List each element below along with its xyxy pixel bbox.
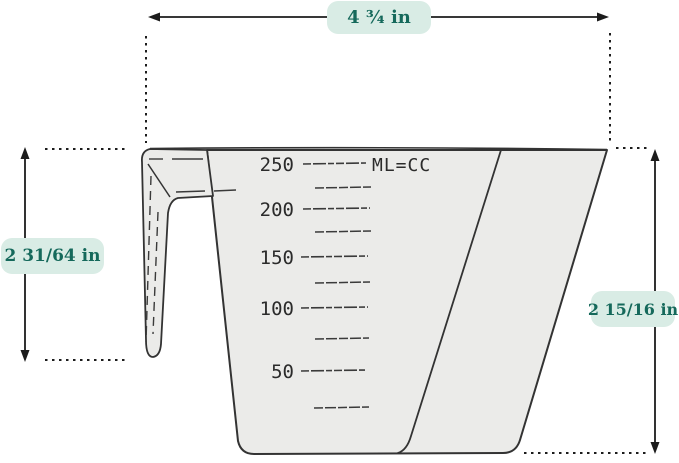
scale-label-250: 250 [260, 154, 294, 176]
dimension-badge-left-height: 2 31/64 in [1, 238, 104, 274]
cup-body [150, 148, 607, 454]
scale-label-100: 100 [260, 298, 294, 320]
unit-label-ml-cc: ML=CC [372, 155, 431, 176]
arrow-left-icon [148, 13, 160, 22]
dimension-value-right-height: 2 15/16 in [588, 300, 678, 319]
scale-label-200: 200 [260, 199, 294, 221]
dimension-badge-right-height: 2 15/16 in [591, 291, 675, 327]
arrow-up-icon [21, 147, 30, 159]
dimension-badge-top-width: 4 ¾ in [327, 1, 431, 34]
arrow-up-icon [651, 149, 660, 161]
dimension-value-top-width: 4 ¾ in [347, 7, 411, 28]
arrow-down-icon [21, 350, 30, 362]
diagram-canvas: 250 200 150 100 50 ML=CC [0, 0, 679, 463]
handle-outline [142, 149, 213, 357]
dimension-value-left-height: 2 31/64 in [4, 246, 100, 266]
scale-label-150: 150 [260, 247, 294, 269]
arrow-down-icon [651, 442, 660, 454]
arrow-right-icon [597, 13, 609, 22]
scale-label-50: 50 [271, 361, 294, 383]
measuring-cup-dimension-diagram: 250 200 150 100 50 ML=CC [0, 0, 679, 463]
